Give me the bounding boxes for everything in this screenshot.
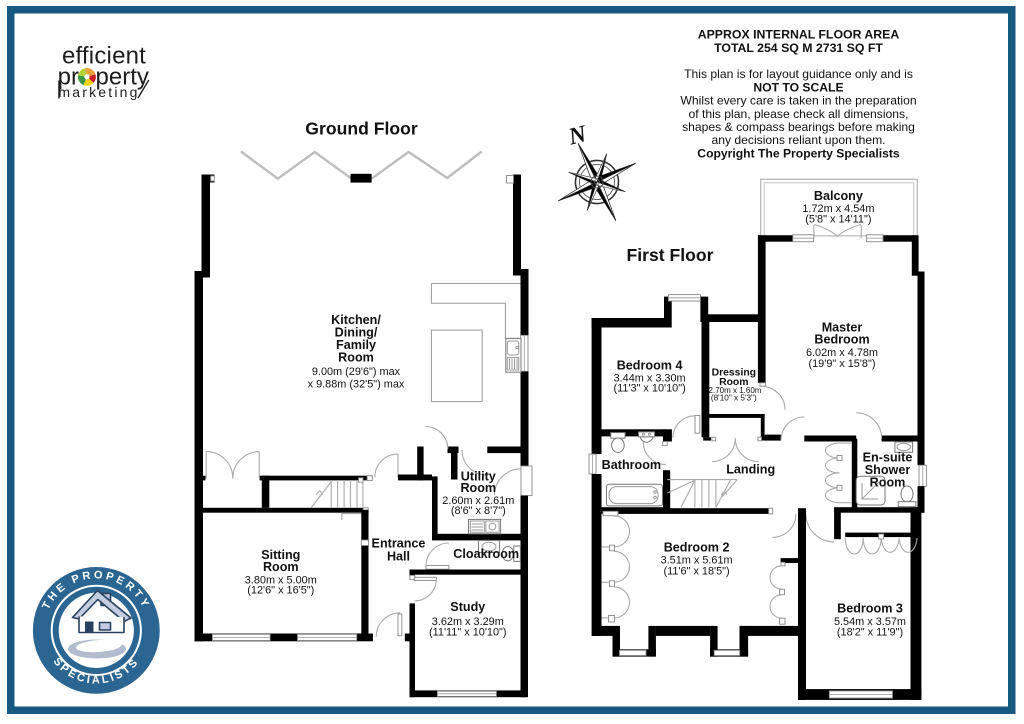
svg-text:TOTAL 254 SQ M 2731 SQ FT: TOTAL 254 SQ M 2731 SQ FT (714, 41, 883, 55)
svg-text:Entrance: Entrance (372, 537, 426, 551)
svg-text:(11'3" x 10'10"): (11'3" x 10'10") (613, 383, 685, 395)
svg-text:Copyright The Property Special: Copyright The Property Specialists (697, 146, 900, 160)
svg-text:This plan is for layout guidan: This plan is for layout guidance only an… (684, 67, 913, 81)
svg-text:(12'6" x 16'5"): (12'6" x 16'5") (247, 585, 314, 597)
svg-text:Landing: Landing (726, 463, 775, 477)
svg-text:Bedroom 4: Bedroom 4 (617, 359, 683, 373)
svg-text:(11'6" x 18'5"): (11'6" x 18'5") (664, 565, 730, 577)
svg-text:(5'8" x 14'11"): (5'8" x 14'11") (805, 214, 871, 226)
svg-text:(19'9" x 15'8"): (19'9" x 15'8") (809, 358, 876, 370)
svg-text:Bedroom 3: Bedroom 3 (837, 602, 903, 616)
svg-text:APPROX INTERNAL FLOOR AREA: APPROX INTERNAL FLOOR AREA (698, 28, 900, 42)
svg-text:Room: Room (263, 560, 299, 574)
svg-text:Hall: Hall (387, 550, 410, 564)
svg-text:(8'6" x 8'7"): (8'6" x 8'7") (451, 505, 506, 517)
svg-text:(11'11" x 10'10"): (11'11" x 10'10") (429, 626, 506, 638)
svg-text:9.00m (29'6") max: 9.00m (29'6") max (312, 366, 401, 378)
svg-text:(8'10" x 5'3"): (8'10" x 5'3") (711, 394, 757, 403)
svg-text:any decisions reliant upon the: any decisions reliant upon them. (711, 133, 885, 147)
svg-text:of this plan, please check all: of this plan, please check all dimension… (688, 107, 908, 121)
svg-text:x 9.88m (32'5") max: x 9.88m (32'5") max (308, 379, 405, 391)
svg-text:Room: Room (870, 476, 906, 490)
svg-text:Room: Room (338, 351, 374, 365)
svg-text:Balcony: Balcony (814, 189, 863, 203)
svg-text:Bedroom: Bedroom (814, 333, 869, 347)
svg-text:Cloakroom: Cloakroom (453, 547, 519, 561)
svg-text:First Floor: First Floor (627, 245, 714, 265)
svg-text:Ground Floor: Ground Floor (305, 119, 418, 139)
svg-text:Room: Room (460, 481, 496, 495)
svg-text:Whilst every care is taken in: Whilst every care is taken in the prepar… (680, 94, 916, 108)
svg-text:NOT TO SCALE: NOT TO SCALE (753, 80, 843, 94)
svg-text:Bedroom 2: Bedroom 2 (664, 541, 730, 555)
svg-text:marketing: marketing (58, 84, 139, 100)
svg-text:Study: Study (450, 600, 485, 614)
svg-text:Bathroom: Bathroom (602, 458, 661, 472)
svg-text:(18'2" x 11'9"): (18'2" x 11'9") (837, 627, 903, 639)
